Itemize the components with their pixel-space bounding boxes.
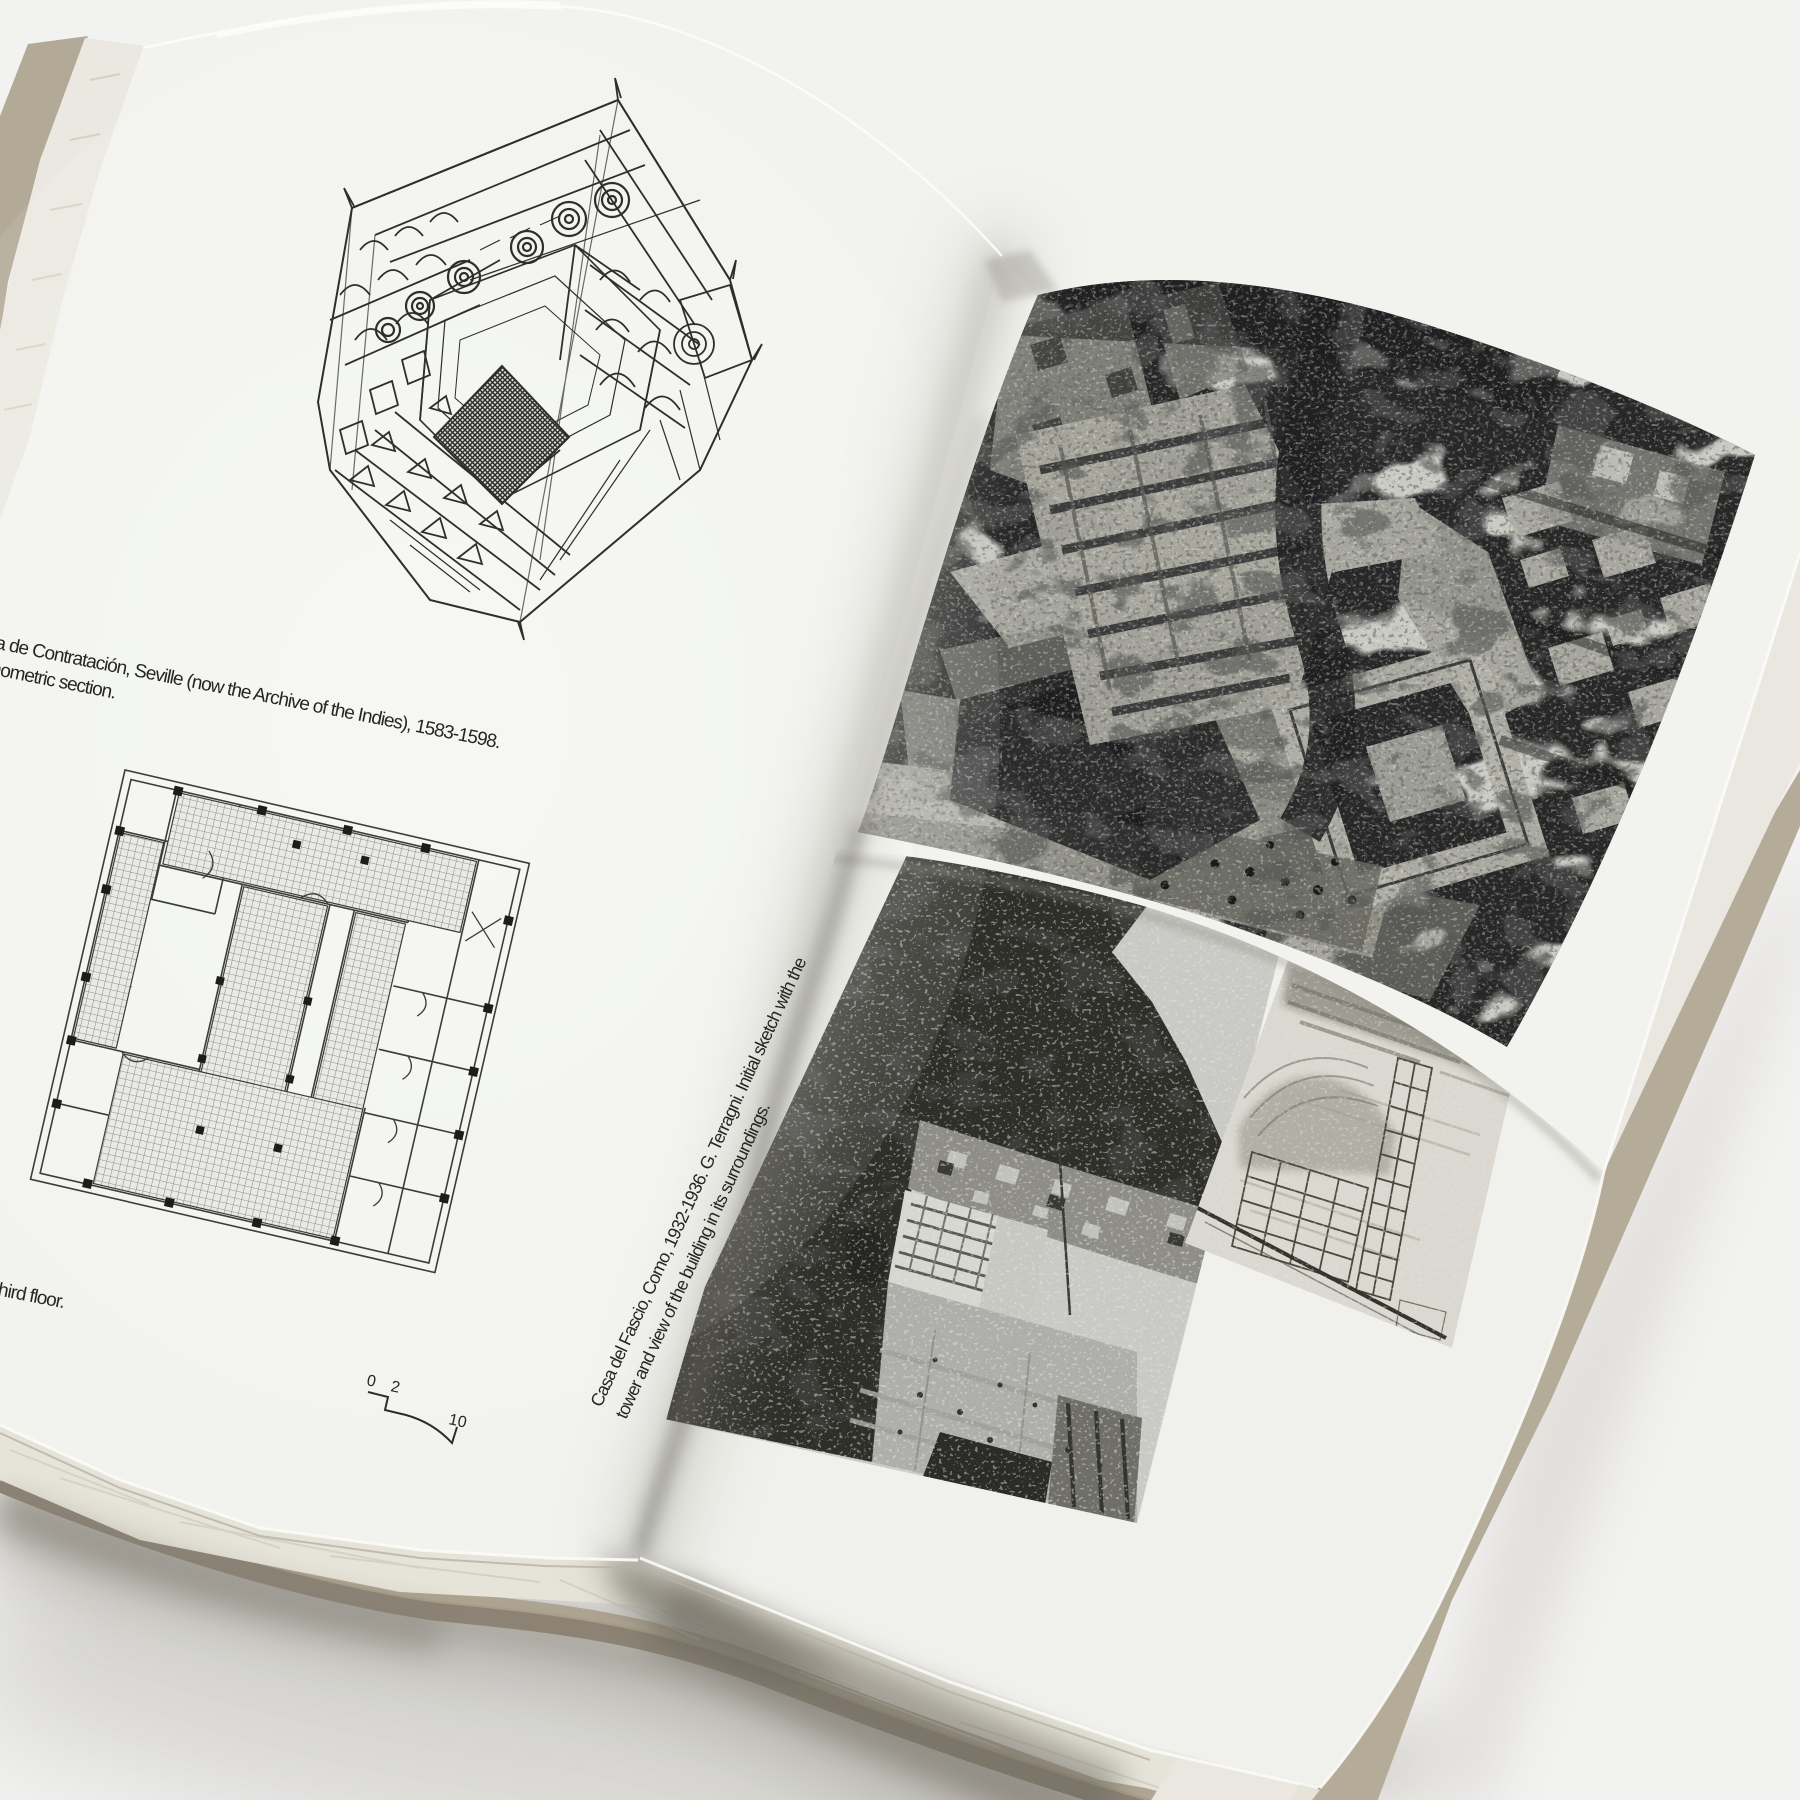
svg-text:10: 10	[447, 1411, 468, 1431]
